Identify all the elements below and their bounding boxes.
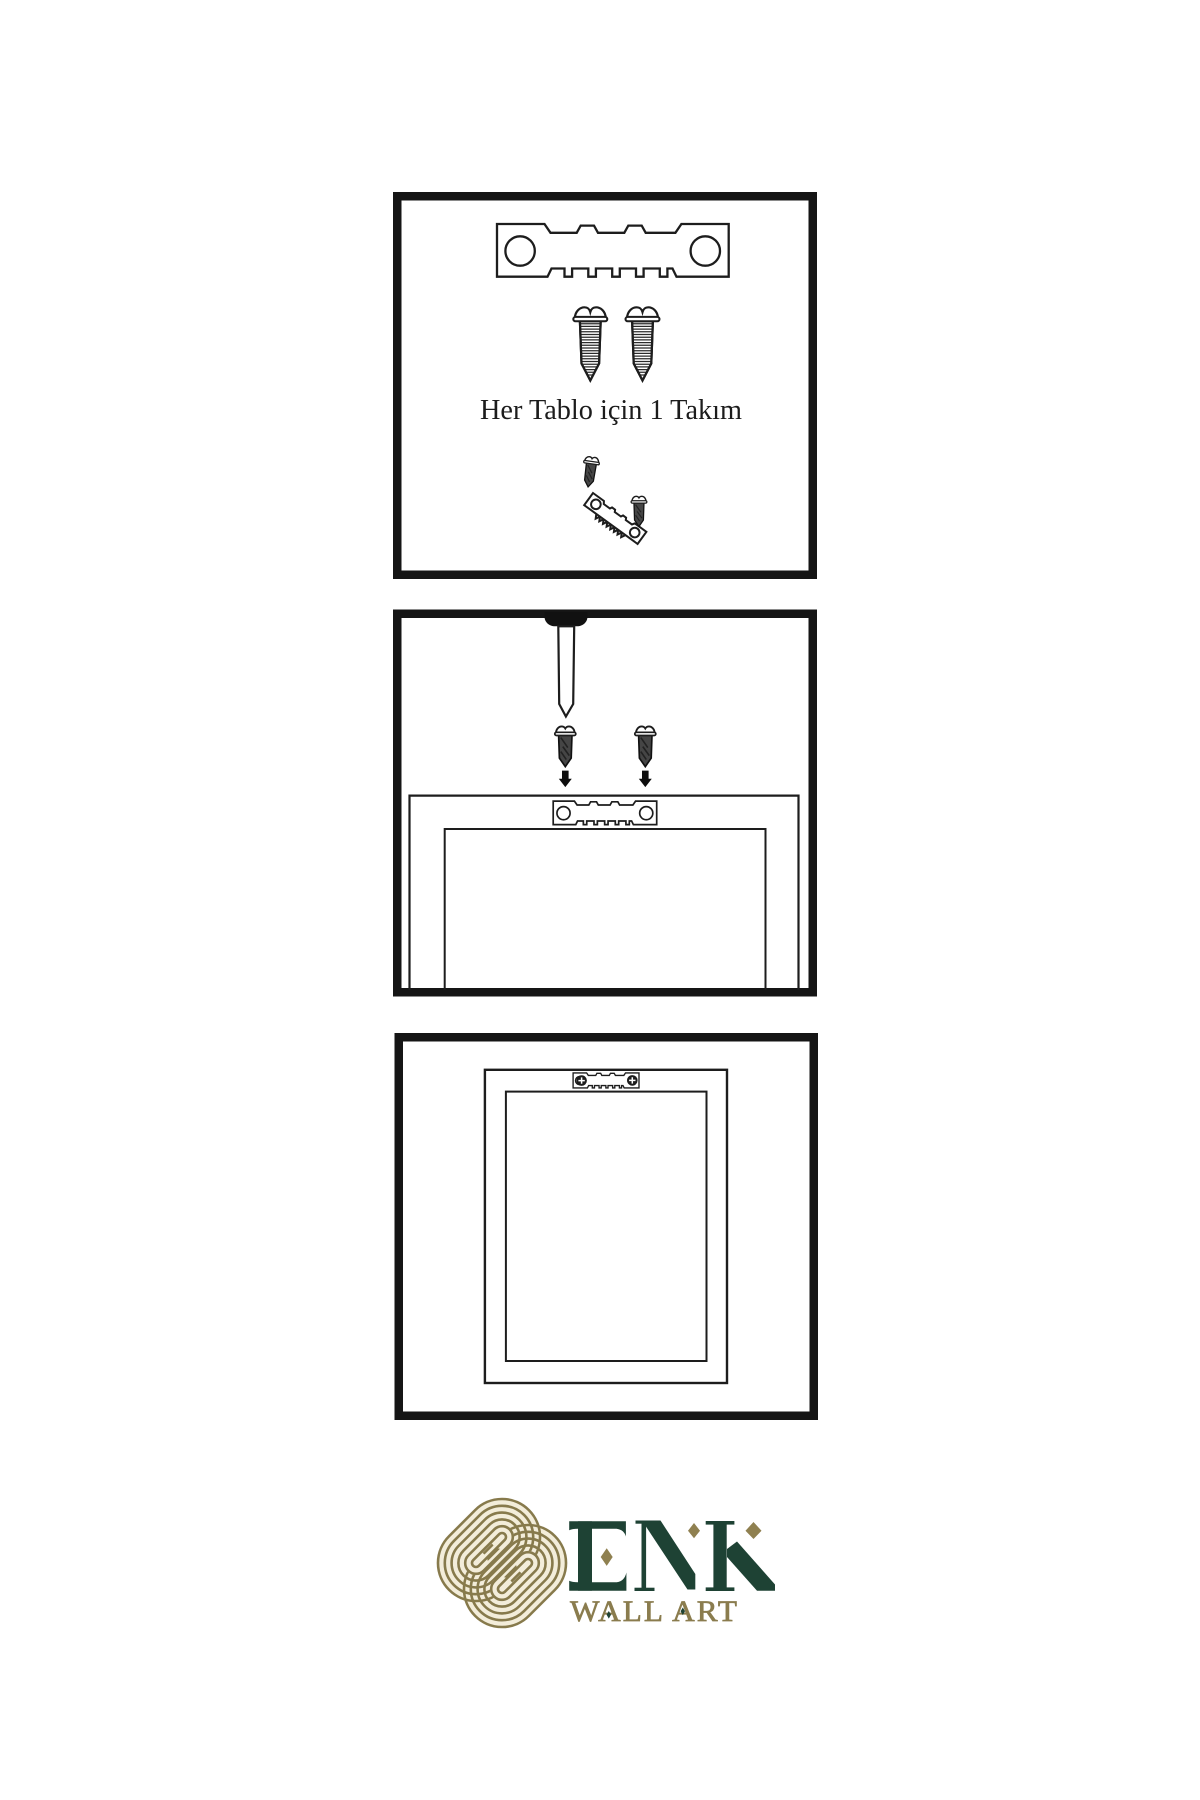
svg-text:Her Tablo için 1 Takım: Her Tablo için 1 Takım — [480, 394, 742, 426]
svg-text:WALL ART: WALL ART — [570, 1595, 739, 1628]
